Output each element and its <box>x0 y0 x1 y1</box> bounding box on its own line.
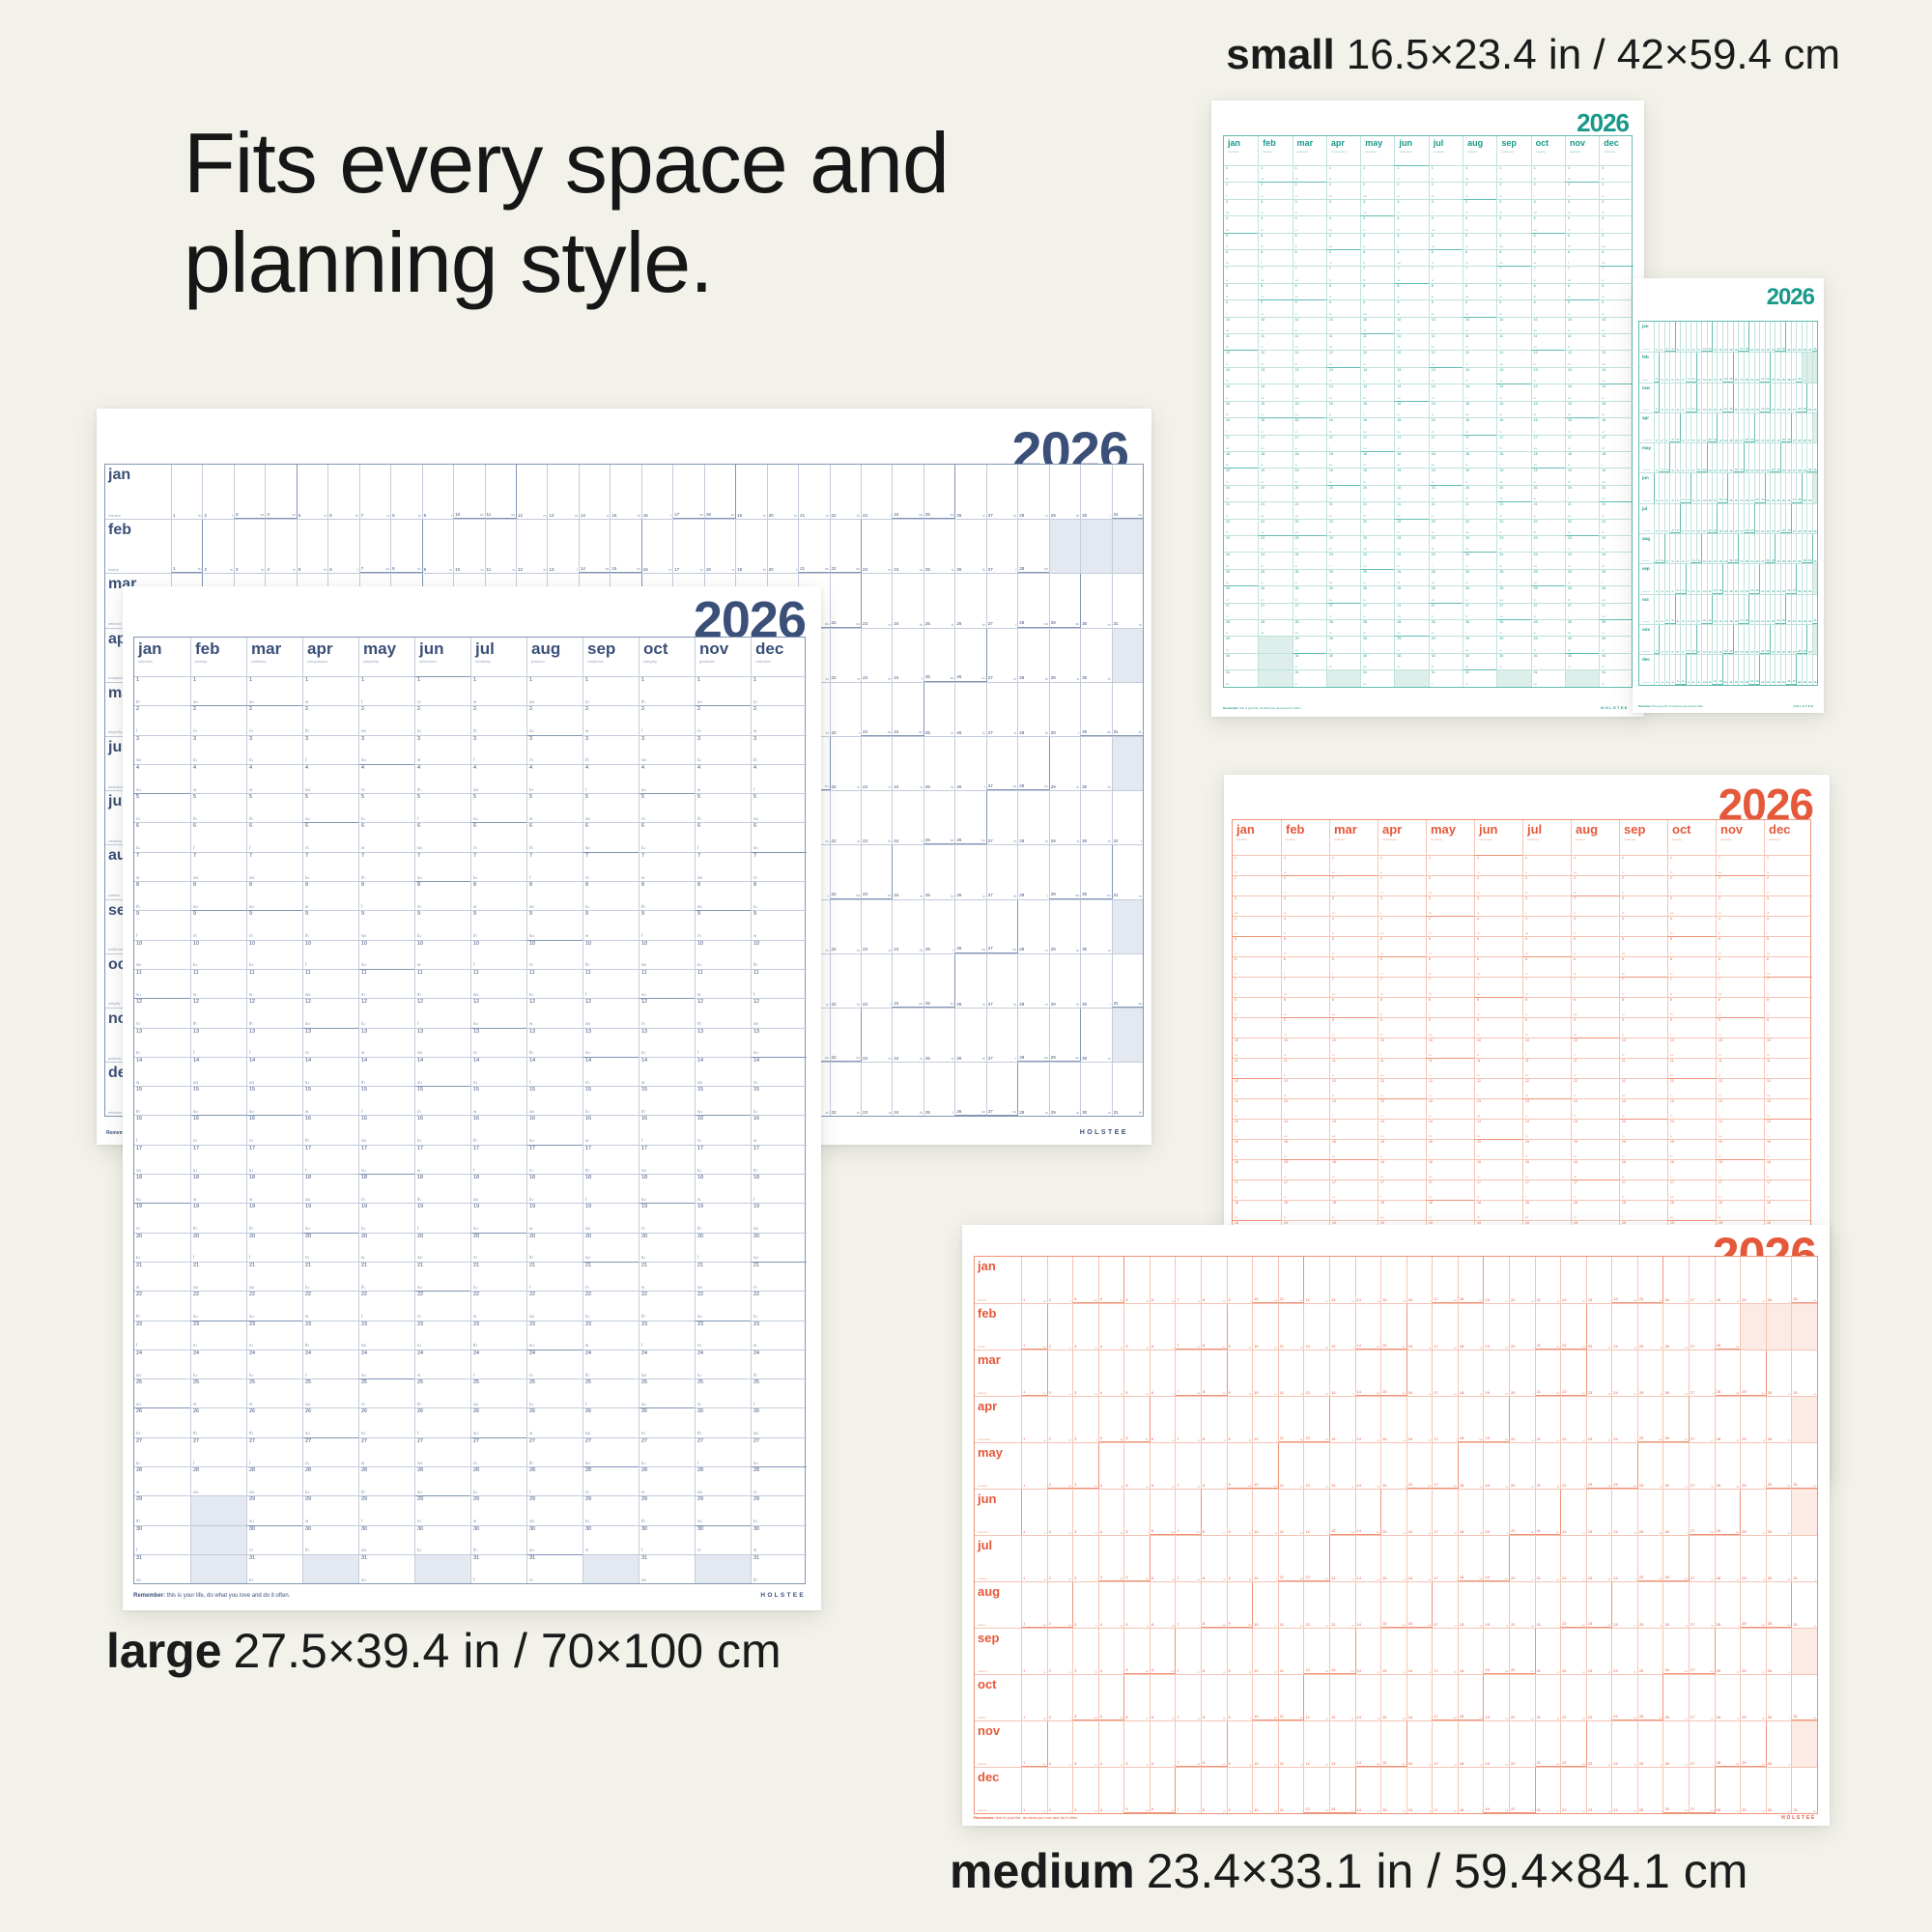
day-cell: 17m <box>1463 435 1496 451</box>
day-cell: 8w <box>1201 1397 1227 1442</box>
day-cell: 9m <box>1329 1017 1378 1037</box>
day-cell: 23th <box>861 791 892 844</box>
day-cell: 15su <box>1565 401 1599 417</box>
day-cell: 7sa <box>1258 266 1292 282</box>
day-cell: 29su <box>1740 1350 1766 1396</box>
day-cell: 27tu <box>986 954 1017 1008</box>
day-cell <box>1791 1721 1817 1767</box>
day-cell: 10th <box>1599 317 1633 333</box>
month-row-label: maysimplicity <box>1639 443 1654 472</box>
day-cell: 20w <box>358 1233 414 1262</box>
day-cell: 17sa <box>134 1145 190 1174</box>
day-cell: 22su <box>830 574 861 627</box>
month-name: jul <box>978 1539 1021 1551</box>
month-row-label: novgratitude <box>975 1721 1021 1767</box>
day-cell: 8th <box>1201 1257 1227 1303</box>
day-cell: 14f <box>526 1057 582 1086</box>
day-cell: 20f <box>1565 485 1599 501</box>
day-cell: 13f <box>1329 1721 1355 1767</box>
day-cell: 14su <box>1474 1119 1522 1139</box>
day-cell: 26sa <box>1496 585 1530 602</box>
day-cell: 14sa <box>1329 1119 1378 1139</box>
day-cell: 15tu <box>751 1086 807 1115</box>
day-cell: 5f <box>414 793 470 822</box>
day-cell: 29th <box>1740 1675 1766 1720</box>
day-cell: 19th <box>190 1203 246 1232</box>
month-row-label: octintegrity <box>1639 595 1654 624</box>
day-cell: 28tu <box>1429 619 1463 636</box>
day-cell: 25f <box>923 900 954 953</box>
day-cell: 30th <box>1766 1397 1792 1442</box>
day-cell: 9f <box>1531 299 1565 316</box>
day-cell: 28m <box>1017 1063 1048 1116</box>
day-cell: 8sa <box>1571 997 1619 1017</box>
day-cell: 27f <box>986 1009 1017 1062</box>
day-cell: 11m <box>1278 1443 1304 1489</box>
day-row: 16f16m16m16th16sa16tu16th16su16w16f16m16… <box>134 1115 805 1144</box>
day-cell: 10tu <box>1252 1721 1278 1767</box>
day-cell: 16m <box>1406 1304 1433 1350</box>
day-cell: 15m <box>414 1086 470 1115</box>
day-cell: 3w <box>1474 895 1522 916</box>
calendar-grid: janintention1th2f3sa4su5m6tu7w8th9f10sa1… <box>1638 321 1818 686</box>
day-cell: 31f <box>1791 1536 1817 1581</box>
day-cell: 26sa <box>954 1063 985 1116</box>
day-cell: 15th <box>1531 401 1565 417</box>
day-cell: 14w <box>134 1057 190 1086</box>
day-cell: 30su <box>1463 653 1496 669</box>
day-cell: 20su <box>1496 485 1530 501</box>
month-row: marwellness1su2m3tu4w5th6f7sa8su9m10tu11… <box>1639 383 1817 412</box>
calendar-note: Remember: this is your life, do what you… <box>1638 706 1704 709</box>
day-cell: 29su <box>246 1495 302 1524</box>
day-cell: 31su <box>1791 1443 1817 1489</box>
day-cell: 29su <box>1049 574 1080 627</box>
headline-line2: planning style. <box>184 213 949 313</box>
day-cell: 15su <box>1258 401 1292 417</box>
day-cell: 26w <box>1463 585 1496 602</box>
day-cell: 13su <box>1329 1629 1355 1674</box>
day-cell: 4sa <box>1522 916 1571 936</box>
day-cell: 13tu <box>134 1028 190 1057</box>
day-cell: 22th <box>1224 519 1258 535</box>
day-cell: 26th <box>1662 1350 1689 1396</box>
day-cell: 16th <box>470 1115 526 1144</box>
day-cell: 2th <box>1326 182 1360 198</box>
day-cell: 4m <box>1426 916 1474 936</box>
day-cell: 1th <box>171 465 202 519</box>
day-cell: 6sa <box>414 822 470 851</box>
day-cell: 12m <box>1303 1257 1329 1303</box>
day-cell: 24th <box>892 1063 923 1116</box>
day-cell: 7tu <box>1326 266 1360 282</box>
month-theme: compassion <box>1642 440 1654 441</box>
month-row-label: aprcompassion <box>975 1397 1021 1442</box>
day-cell: 24w <box>1394 552 1428 568</box>
day-cell: 21sa <box>1535 1304 1561 1350</box>
day-cell: 15th <box>1224 401 1258 417</box>
day-cell: 4f <box>1098 1629 1124 1674</box>
day-cell: 30sa <box>1080 683 1111 736</box>
day-cell: 11w <box>1293 333 1326 350</box>
day-cell: 13th <box>1571 1098 1619 1119</box>
day-cell: 26su <box>470 1407 526 1436</box>
day-cell: 14su <box>1394 384 1428 400</box>
day-cell: 23th <box>470 1321 526 1350</box>
day-cell: 10w <box>1394 317 1428 333</box>
day-cell: 28th <box>1715 1443 1741 1489</box>
day-cell: 24w <box>414 1350 470 1378</box>
month-theme: compassion <box>1382 838 1426 841</box>
day-cell: 14sa <box>1258 384 1292 400</box>
day-cell: 31f <box>1812 504 1817 533</box>
day-cell: 22tu <box>830 1063 861 1116</box>
day-cell: 16th <box>1406 1397 1433 1442</box>
day-cell: 7m <box>1175 1768 1201 1813</box>
day-cell: 6su <box>1619 956 1667 977</box>
day-cell: 12th <box>695 998 751 1027</box>
day-cell: 12su <box>1326 350 1360 366</box>
day-cell: 15tu <box>1764 1139 1812 1159</box>
day-cell: 25th <box>1637 1490 1663 1535</box>
day-cell: 6su <box>582 822 639 851</box>
day-cell: 11sa <box>1429 333 1463 350</box>
day-cell: 6f <box>327 520 358 573</box>
day-cell: 31sa <box>1791 1257 1817 1303</box>
month-row-label: sepresilience <box>975 1629 1021 1674</box>
day-cell: 25w <box>246 1378 302 1407</box>
day-cell: 17f <box>1432 1536 1458 1581</box>
month-row: novgratitude1su2m3tu4w5th6f7sa8su9m10tu1… <box>1639 624 1817 654</box>
day-cell: 25tu <box>1463 569 1496 585</box>
month-column-header: augpassion <box>1571 820 1619 855</box>
day-cell: 15tu <box>1599 401 1633 417</box>
day-cell: 25w <box>1637 1304 1663 1350</box>
day-cell: 11f <box>1599 333 1633 350</box>
day-cell: 2su <box>1571 875 1619 895</box>
day-cell: 12sa <box>582 998 639 1027</box>
month-name: feb <box>978 1307 1021 1320</box>
day-cell: 18w <box>1565 451 1599 468</box>
day-cell: 17th <box>1619 1179 1667 1200</box>
day-cell: 19tu <box>358 1203 414 1232</box>
day-cell: 9m <box>1565 299 1599 316</box>
day-cell: 30su <box>1080 845 1111 898</box>
day-cell: 10w <box>1252 1490 1278 1535</box>
day-cell: 1su <box>1021 1721 1047 1767</box>
day-cell: 6m <box>1326 249 1360 266</box>
day-cell: 2tu <box>414 705 470 734</box>
day-cell: 24sa <box>134 1350 190 1378</box>
day-cell: 13m <box>1429 367 1463 384</box>
day-cell: 23su <box>526 1321 582 1350</box>
month-theme: simplicity <box>1642 469 1654 471</box>
day-cell: 30m <box>695 1525 751 1554</box>
day-cell: 19w <box>1483 1582 1509 1628</box>
day-cell: 16m <box>1329 1159 1378 1179</box>
day-cell: 18su <box>1458 1257 1484 1303</box>
day-cell: 28w <box>1017 954 1048 1008</box>
day-row: 7w7sa7sa7tu7th7su7tu7f7m7w7sa7m <box>1233 977 1810 997</box>
day-cell: 13w <box>1360 367 1394 384</box>
day-cell: 24th <box>1611 1768 1637 1813</box>
day-cell: 5sa <box>1599 233 1633 249</box>
day-cell: 15w <box>1380 1536 1406 1581</box>
day-cell: 28sa <box>1293 619 1326 636</box>
day-cell: 4f <box>1496 215 1530 232</box>
day-cell: 4sa <box>1098 1536 1124 1581</box>
day-row: 7w7sa7sa7tu7th7su7tu7f7m7w7sa7m <box>1224 266 1632 282</box>
day-cell: 7sa <box>695 852 751 881</box>
day-cell: 19sa <box>1599 468 1633 484</box>
day-cell: 28su <box>1715 1490 1741 1535</box>
day-cell: 5th <box>297 520 327 573</box>
day-cell: 11th <box>414 969 470 998</box>
day-cell: 27f <box>1293 603 1326 619</box>
day-cell: 1tu <box>751 676 807 705</box>
day-cell: 9sa <box>1426 1017 1474 1037</box>
day-cell: 29sa <box>526 1495 582 1524</box>
day-cell: 13su <box>1329 1768 1355 1813</box>
day-cell: 10f <box>1326 317 1360 333</box>
day-cell: 12w <box>1571 1078 1619 1098</box>
day-cell: 20m <box>470 1233 526 1262</box>
day-cell: 17su <box>1432 1443 1458 1489</box>
day-cell: 10th <box>582 940 639 969</box>
day-cell: 2w <box>1764 875 1812 895</box>
day-cell: 4f <box>1619 916 1667 936</box>
day-cell: 8su <box>390 520 421 573</box>
day-cell: 5su <box>1378 936 1426 956</box>
day-cell: 29m <box>1740 1490 1766 1535</box>
day-cell: 4su <box>639 764 695 793</box>
day-cell: 18sa <box>1522 1200 1571 1220</box>
month-column-header: julcreativity <box>470 638 526 676</box>
day-row: 31sa31tu31su31f31m31sa31th <box>1224 669 1632 686</box>
day-cell: 15su <box>1293 401 1326 417</box>
day-cell: 19sa <box>1496 468 1530 484</box>
day-cell: 24tu <box>1611 1304 1637 1350</box>
day-cell: 18f <box>1764 1200 1812 1220</box>
day-cell: 20tu <box>134 1233 190 1262</box>
month-name: aug <box>531 640 582 657</box>
day-cell: 31sa <box>1531 669 1565 686</box>
day-cell: 14sa <box>190 1057 246 1086</box>
day-cell: 29m <box>414 1495 470 1524</box>
day-cell: 4w <box>1281 916 1329 936</box>
day-cell: 23f <box>639 1321 695 1350</box>
day-cell: 1su <box>1258 165 1292 182</box>
size-name-small: small <box>1226 31 1335 78</box>
day-cell: 5th <box>246 793 302 822</box>
day-cell: 7m <box>1764 977 1812 997</box>
day-cell: 8w <box>1201 1536 1227 1581</box>
day-cell: 17tu <box>1329 1179 1378 1200</box>
day-cell: 20f <box>190 1233 246 1262</box>
day-cell: 5sa <box>1619 936 1667 956</box>
day-cell: 4sa <box>1326 215 1360 232</box>
month-name: sep <box>587 640 639 657</box>
day-cell: 26tu <box>1662 1443 1689 1489</box>
day-cell: 7w <box>1175 1257 1201 1303</box>
day-cell: 9m <box>1293 299 1326 316</box>
month-theme: wellness <box>1334 838 1378 841</box>
day-cell: 18tu <box>1463 451 1496 468</box>
day-cell: 11su <box>134 969 190 998</box>
month-row: aprcompassion1w2th3f4sa5su6m7tu8w9th10f1… <box>1639 412 1817 442</box>
day-cell: 14w <box>1531 384 1565 400</box>
month-name: may <box>1365 139 1394 148</box>
day-row: 21w21sa21sa21tu21th21su21tu21f21m21w21sa… <box>134 1262 805 1291</box>
size-label-large: large27.5×39.4 in / 70×100 cm <box>106 1623 781 1679</box>
day-cell: 12th <box>1303 1721 1329 1767</box>
day-cell: 9sa <box>358 910 414 939</box>
day-cell: 24f <box>1429 552 1463 568</box>
day-cell: 22th <box>1560 1257 1586 1303</box>
day-cell: 8w <box>1429 283 1463 299</box>
day-cell: 28su <box>1017 737 1048 790</box>
day-cell: 22su <box>1258 519 1292 535</box>
day-cell: 11su <box>485 465 516 519</box>
day-cell: 16th <box>1429 417 1463 434</box>
day-cell: 6tu <box>1224 249 1258 266</box>
day-cell: 31sa <box>1224 669 1258 686</box>
day-cell: 12f <box>1474 1078 1522 1098</box>
month-row: marwellness1su2m3tu4w5th6f7sa8su9m10tu11… <box>975 1350 1817 1396</box>
day-cell: 17f <box>1432 1397 1458 1442</box>
day-row: 7w7sa7sa7tu7th7su7tu7f7m7w7sa7m <box>134 852 805 881</box>
day-cell: 25tu <box>923 845 954 898</box>
day-cell <box>1791 1304 1817 1350</box>
day-cell: 8sa <box>1463 283 1496 299</box>
day-row: 17sa17tu17tu17f17su17w17f17m17th17sa17tu… <box>1233 1179 1810 1200</box>
day-cell: 23su <box>1586 1582 1612 1628</box>
day-cell: 27f <box>1689 1304 1715 1350</box>
day-cell: 11m <box>1360 333 1394 350</box>
day-cell: 8su <box>1329 997 1378 1017</box>
day-cell: 23f <box>1586 1257 1612 1303</box>
day-cell: 5th <box>1281 936 1329 956</box>
day-cell: 4w <box>1293 215 1326 232</box>
day-cell: 24th <box>1611 1629 1637 1674</box>
day-cell: 12sa <box>1619 1078 1667 1098</box>
day-cell: 22th <box>830 465 861 519</box>
day-cell: 21sa <box>246 1262 302 1291</box>
month-column-header: maysimplicity <box>1360 136 1394 165</box>
day-cell: 30sa <box>1360 653 1394 669</box>
day-cell: 19sa <box>582 1203 639 1232</box>
day-cell: 14m <box>1355 1768 1381 1813</box>
day-cell: 9f <box>134 910 190 939</box>
day-cell: 22sa <box>1560 1582 1586 1628</box>
day-cell: 10tu <box>453 520 484 573</box>
day-cell: 5m <box>134 793 190 822</box>
day-cell: 6m <box>302 822 358 851</box>
day-cell: 5f <box>1474 936 1522 956</box>
day-cell: 13su <box>1619 1098 1667 1119</box>
day-cell: 2tu <box>1394 182 1428 198</box>
day-cell: 28sa <box>1565 619 1599 636</box>
month-theme: adventure <box>1479 838 1522 841</box>
day-cell: 13su <box>582 1028 639 1057</box>
month-name: aug <box>1642 537 1654 542</box>
calendar-poster-small-landscape: 2026 janintention1th2f3sa4su5m6tu7w8th9f… <box>1633 278 1824 713</box>
month-name: dec <box>1604 139 1633 148</box>
day-cell: 18m <box>358 1174 414 1203</box>
day-cell: 8su <box>1201 1304 1227 1350</box>
day-cell: 18f <box>582 1174 639 1203</box>
day-cell: 14w <box>1224 384 1258 400</box>
day-row: 13tu13f13f13m13w13sa13m13th13su13tu13f13… <box>1233 1098 1810 1119</box>
day-cell: 11sa <box>1278 1397 1304 1442</box>
day-cell: 19th <box>1293 468 1326 484</box>
day-cell: 2sa <box>1360 182 1394 198</box>
day-cell: 22f <box>358 1291 414 1320</box>
day-cell: 23w <box>861 900 892 953</box>
day-cell: 26th <box>190 1407 246 1436</box>
day-cell: 25sa <box>470 1378 526 1407</box>
day-cell: 16tu <box>1474 1159 1522 1179</box>
day-cell: 27su <box>1689 1629 1715 1674</box>
month-theme: intention <box>1236 838 1281 841</box>
calendar-note: Remember: this is your life, do what you… <box>1223 707 1301 710</box>
day-cell: 20tu <box>1531 485 1565 501</box>
day-cell: 17th <box>751 1145 807 1174</box>
day-row: 16f16m16m16th16sa16tu16th16su16w16f16m16… <box>1224 417 1632 434</box>
day-cell: 6f <box>1565 249 1599 266</box>
month-row: febkinship1su2m3tu4w5th6f7sa8su9m10tu11w… <box>1639 352 1817 382</box>
day-cell: 16f <box>1406 1675 1433 1720</box>
day-cell: 29tu <box>1740 1768 1766 1813</box>
day-cell: 17w <box>1474 1179 1522 1200</box>
month-name: jan <box>1236 823 1281 836</box>
day-cell: 27sa <box>414 1437 470 1466</box>
day-cell: 24tu <box>892 574 923 627</box>
day-row: 4su4w4w4sa4m4th4sa4tu4f4su4w4f <box>1233 916 1810 936</box>
product-promo-image: Fits every space and planning style. sma… <box>0 0 1932 1932</box>
day-cell: 29f <box>1360 636 1394 652</box>
day-cell: 12tu <box>1303 1443 1329 1489</box>
day-cell: 18w <box>1293 451 1326 468</box>
day-cell: 7tu <box>470 852 526 881</box>
day-cell: 13tu <box>1224 367 1258 384</box>
day-cell: 26m <box>954 465 985 519</box>
day-cell: 16m <box>641 520 672 573</box>
day-cell: 10m <box>526 940 582 969</box>
month-theme: intention <box>1642 349 1654 351</box>
day-cell: 20su <box>1509 1629 1535 1674</box>
day-cell: 2th <box>470 705 526 734</box>
day-cell: 16w <box>1496 417 1530 434</box>
day-cell: 5th <box>1123 1721 1150 1767</box>
day-cell: 12m <box>1224 350 1258 366</box>
day-cell: 15su <box>1380 1350 1406 1396</box>
day-cell: 16sa <box>1360 417 1394 434</box>
day-cell: 8w <box>1522 997 1571 1017</box>
month-theme: simplicity <box>1365 151 1394 154</box>
day-cell: 31th <box>1112 1063 1143 1116</box>
day-cell: 6sa <box>1394 249 1428 266</box>
day-cell: 23m <box>861 1009 892 1062</box>
day-cell: 14f <box>1463 384 1496 400</box>
day-cell: 4su <box>1224 215 1258 232</box>
day-cell: 15w <box>1522 1139 1571 1159</box>
month-row-label: junadventure <box>975 1490 1021 1535</box>
day-cell: 22su <box>246 1291 302 1320</box>
day-cell: 16w <box>1406 1629 1433 1674</box>
day-cell: 20m <box>1509 1397 1535 1442</box>
day-row: 6tu6f6f6m6w6sa6m6th6su6tu6f6su <box>134 822 805 851</box>
